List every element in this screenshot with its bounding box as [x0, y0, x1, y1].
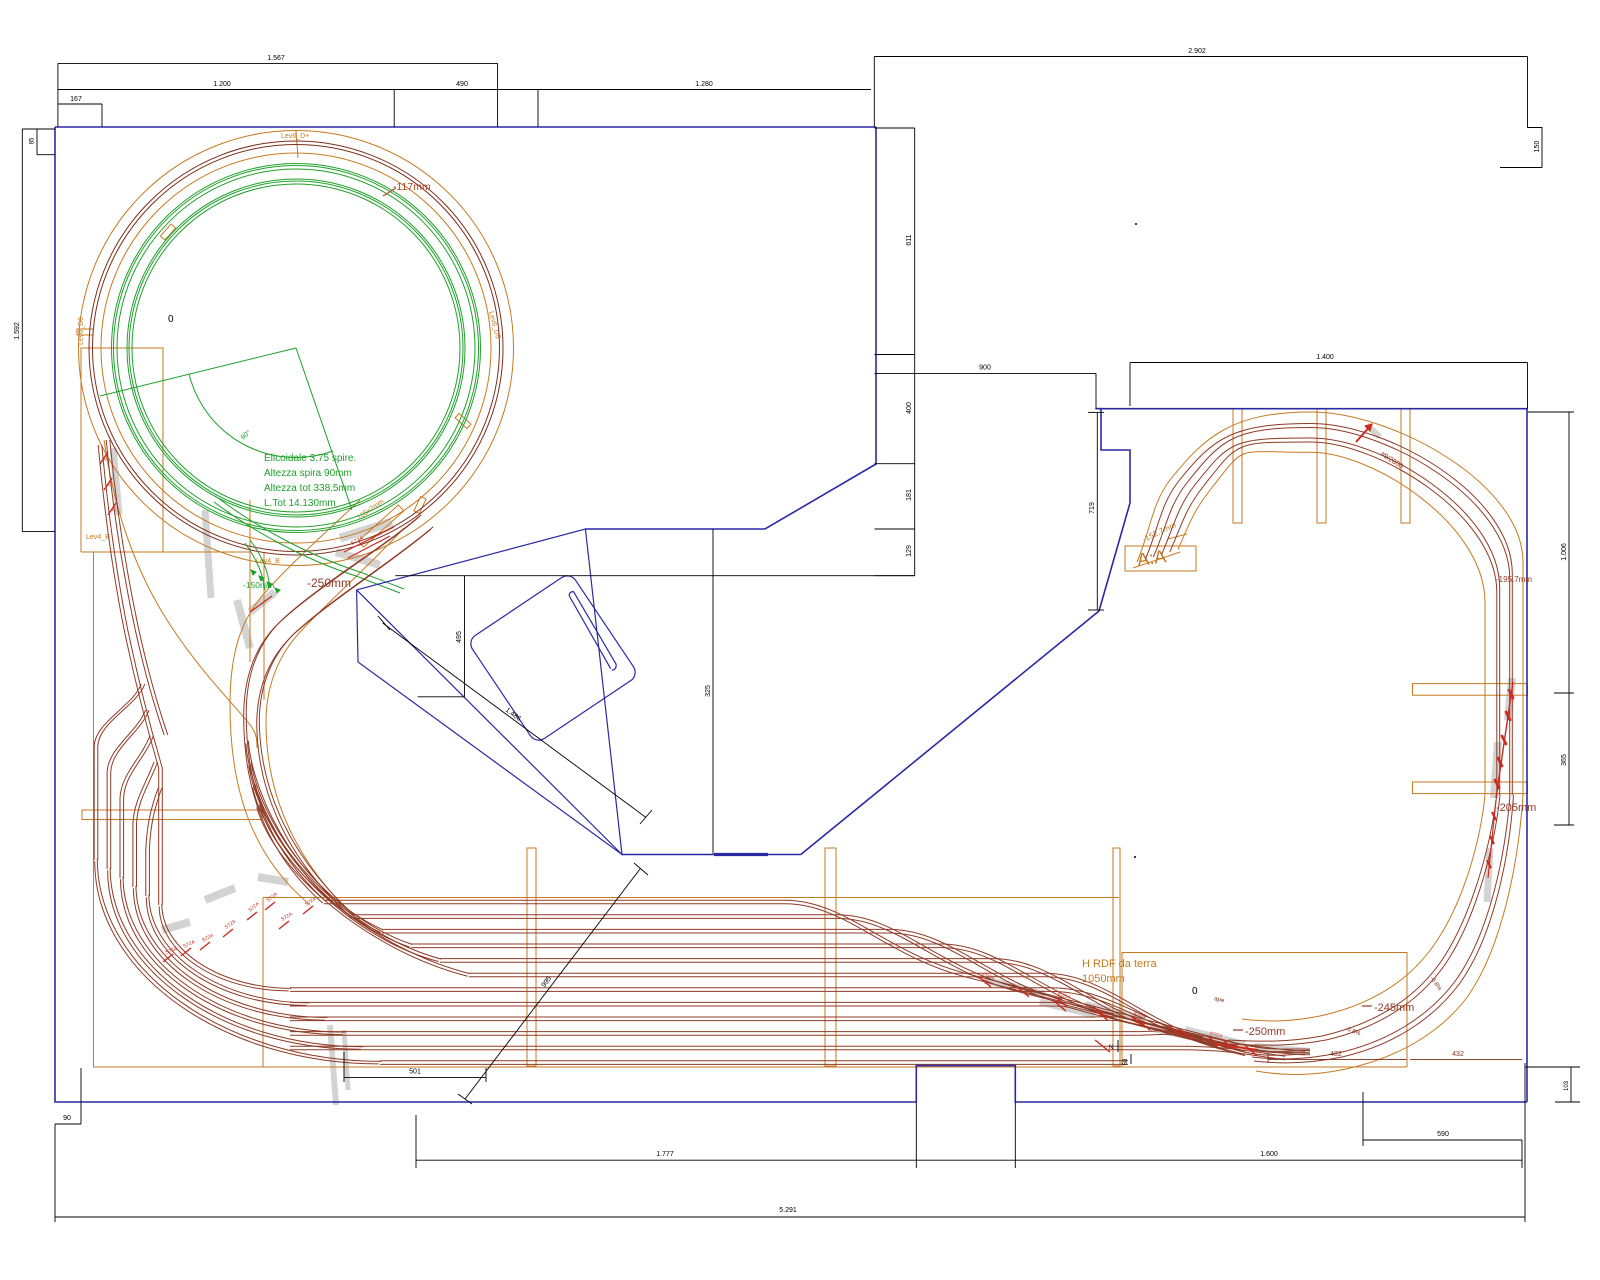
svg-text:611: 611 — [906, 234, 913, 245]
svg-text:1.777: 1.777 — [656, 1151, 674, 1158]
svg-text:-250mm: -250mm — [307, 576, 351, 590]
svg-text:400: 400 — [906, 402, 913, 414]
svg-text:501: 501 — [409, 1069, 421, 1076]
svg-text:1.600: 1.600 — [1260, 1151, 1278, 1158]
svg-text:-245mm: -245mm — [1374, 1002, 1414, 1014]
svg-text:1.200: 1.200 — [213, 81, 231, 88]
svg-text:-250mm: -250mm — [1245, 1026, 1285, 1038]
svg-text:85: 85 — [30, 137, 36, 144]
svg-text:0: 0 — [168, 314, 174, 325]
svg-text:1050mm: 1050mm — [1082, 973, 1125, 985]
svg-text:365: 365 — [1561, 754, 1568, 766]
svg-text:181: 181 — [906, 489, 913, 501]
svg-text:58: 58 — [1123, 1058, 1129, 1065]
svg-text:H RDF da terra: H RDF da terra — [1082, 958, 1157, 970]
svg-text:495: 495 — [456, 631, 463, 643]
svg-text:Lev6_D+: Lev6_D+ — [281, 133, 309, 140]
svg-text:Altezza spira 90mm: Altezza spira 90mm — [264, 468, 352, 479]
svg-text:103: 103 — [1564, 1080, 1570, 1091]
svg-text:432: 432 — [1452, 1051, 1464, 1058]
svg-text:Elicoidale 3.75 spire.: Elicoidale 3.75 spire. — [264, 453, 356, 464]
svg-text:90: 90 — [63, 1115, 71, 1122]
svg-text:-205mm: -205mm — [1496, 802, 1536, 814]
svg-text:0: 0 — [1192, 986, 1198, 997]
svg-text:129: 129 — [906, 545, 913, 557]
svg-text:1.400: 1.400 — [1316, 354, 1334, 361]
svg-text:Lev4_B: Lev4_B — [86, 534, 110, 541]
svg-text:-117mm: -117mm — [393, 181, 431, 193]
svg-text:1.006: 1.006 — [1561, 543, 1568, 561]
svg-text:482: 482 — [1330, 1051, 1342, 1058]
svg-text:2.902: 2.902 — [1188, 48, 1206, 55]
svg-text:150: 150 — [1534, 141, 1541, 153]
svg-text:167: 167 — [70, 96, 82, 103]
svg-text:1.280: 1.280 — [695, 81, 713, 88]
svg-text:L.Tot 14.130mm: L.Tot 14.130mm — [264, 498, 336, 509]
svg-text:900: 900 — [979, 365, 991, 372]
svg-text:N: N — [1109, 1045, 1113, 1051]
svg-text:1.567: 1.567 — [267, 55, 285, 62]
svg-text:-195.7mm: -195.7mm — [1496, 575, 1532, 584]
svg-text:Altezza tot 338.5mm: Altezza tot 338.5mm — [264, 483, 355, 494]
svg-text:590: 590 — [1437, 1131, 1449, 1138]
svg-text:719: 719 — [1089, 502, 1096, 514]
svg-text:325: 325 — [705, 685, 712, 697]
svg-text:5.291: 5.291 — [779, 1207, 797, 1214]
svg-text:1.592: 1.592 — [14, 322, 21, 340]
svg-text:490: 490 — [456, 81, 468, 88]
svg-text:-150mm: -150mm — [243, 580, 274, 590]
